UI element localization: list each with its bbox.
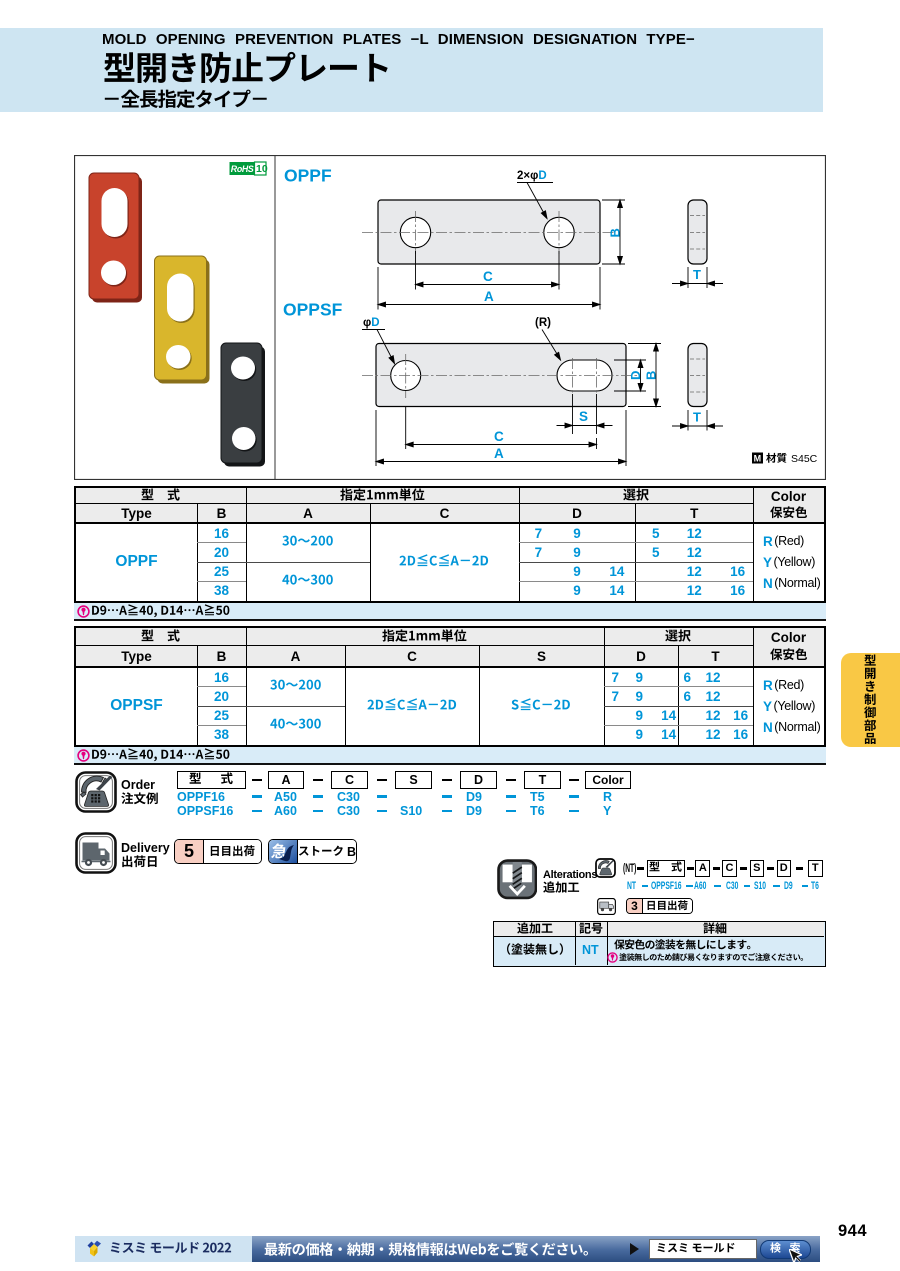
svg-text:2×φD: 2×φD [517, 170, 547, 182]
svg-text:C: C [483, 269, 493, 284]
svg-text:φD: φD [363, 317, 380, 329]
svg-text:A: A [484, 289, 494, 304]
svg-text:B: B [644, 371, 659, 380]
svg-text:M: M [754, 454, 762, 464]
svg-text:OPPF: OPPF [284, 166, 332, 186]
svg-text:D: D [628, 371, 643, 380]
svg-text:T: T [693, 267, 701, 282]
svg-text:RoHS: RoHS [231, 164, 254, 174]
svg-text:T: T [693, 410, 701, 425]
svg-text:S: S [579, 409, 588, 424]
svg-text:10: 10 [256, 163, 268, 175]
svg-text:C: C [494, 429, 504, 444]
svg-text:OPPSF: OPPSF [283, 300, 343, 320]
svg-text:A: A [494, 446, 504, 461]
svg-text:B: B [608, 228, 623, 237]
svg-text:S45C: S45C [791, 453, 818, 465]
svg-text:(R): (R) [535, 317, 551, 329]
